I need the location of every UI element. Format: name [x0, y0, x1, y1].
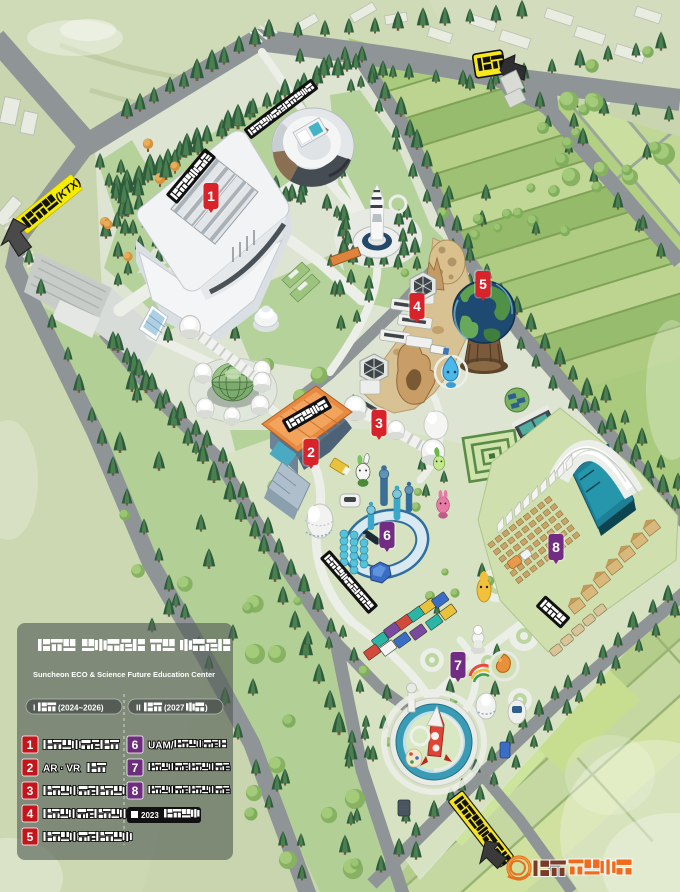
svg-text:6: 6 [132, 738, 139, 752]
svg-text:(2027: (2027 [164, 704, 185, 713]
svg-text:3: 3 [375, 415, 383, 431]
svg-text:I: I [33, 703, 35, 713]
svg-text:AR · VR: AR · VR [43, 764, 81, 775]
svg-text:(2024~2026): (2024~2026) [58, 704, 104, 713]
svg-text:4: 4 [27, 807, 34, 821]
svg-text:8: 8 [132, 784, 139, 798]
svg-text:8: 8 [552, 539, 560, 555]
svg-text:2: 2 [307, 444, 315, 460]
svg-text:7: 7 [454, 657, 462, 673]
svg-text:2: 2 [27, 761, 34, 775]
svg-text:1: 1 [207, 188, 215, 204]
svg-text:7: 7 [132, 761, 139, 775]
svg-text:4: 4 [413, 298, 421, 314]
svg-text:UAM/: UAM/ [148, 741, 174, 752]
svg-text:5: 5 [27, 830, 34, 844]
svg-text:2023: 2023 [141, 811, 159, 820]
svg-text:3: 3 [27, 784, 34, 798]
svg-text:5: 5 [479, 276, 487, 292]
svg-text:Suncheon ECO & Science Future: Suncheon ECO & Science Future Education … [33, 670, 215, 679]
svg-text:): ) [205, 704, 208, 713]
svg-text:II: II [136, 703, 141, 713]
svg-text:6: 6 [383, 527, 391, 543]
svg-text:1: 1 [27, 738, 34, 752]
